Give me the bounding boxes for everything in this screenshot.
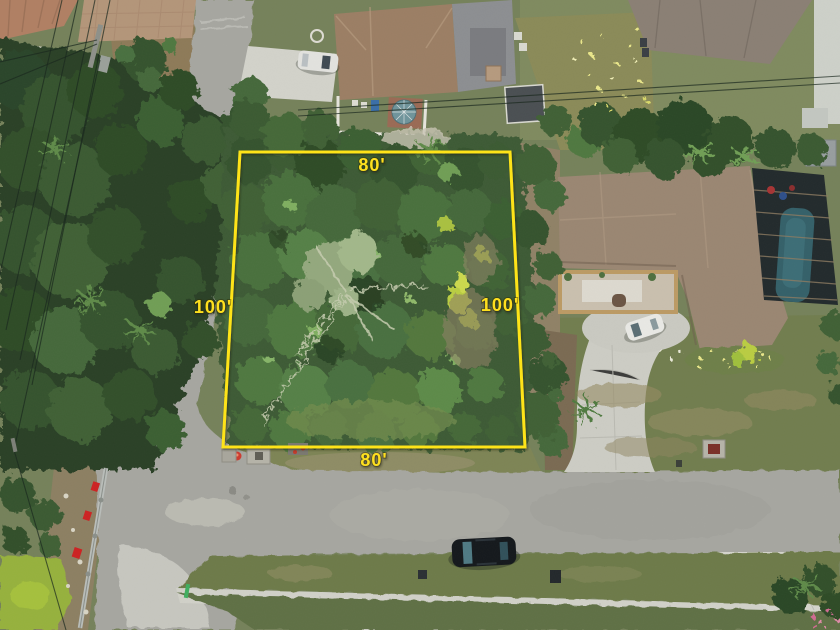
photo-grain xyxy=(0,0,840,630)
aerial-scene: 80' 80' 100' 100' xyxy=(0,0,840,630)
aerial-photo: 80' 80' 100' 100' xyxy=(0,0,840,630)
